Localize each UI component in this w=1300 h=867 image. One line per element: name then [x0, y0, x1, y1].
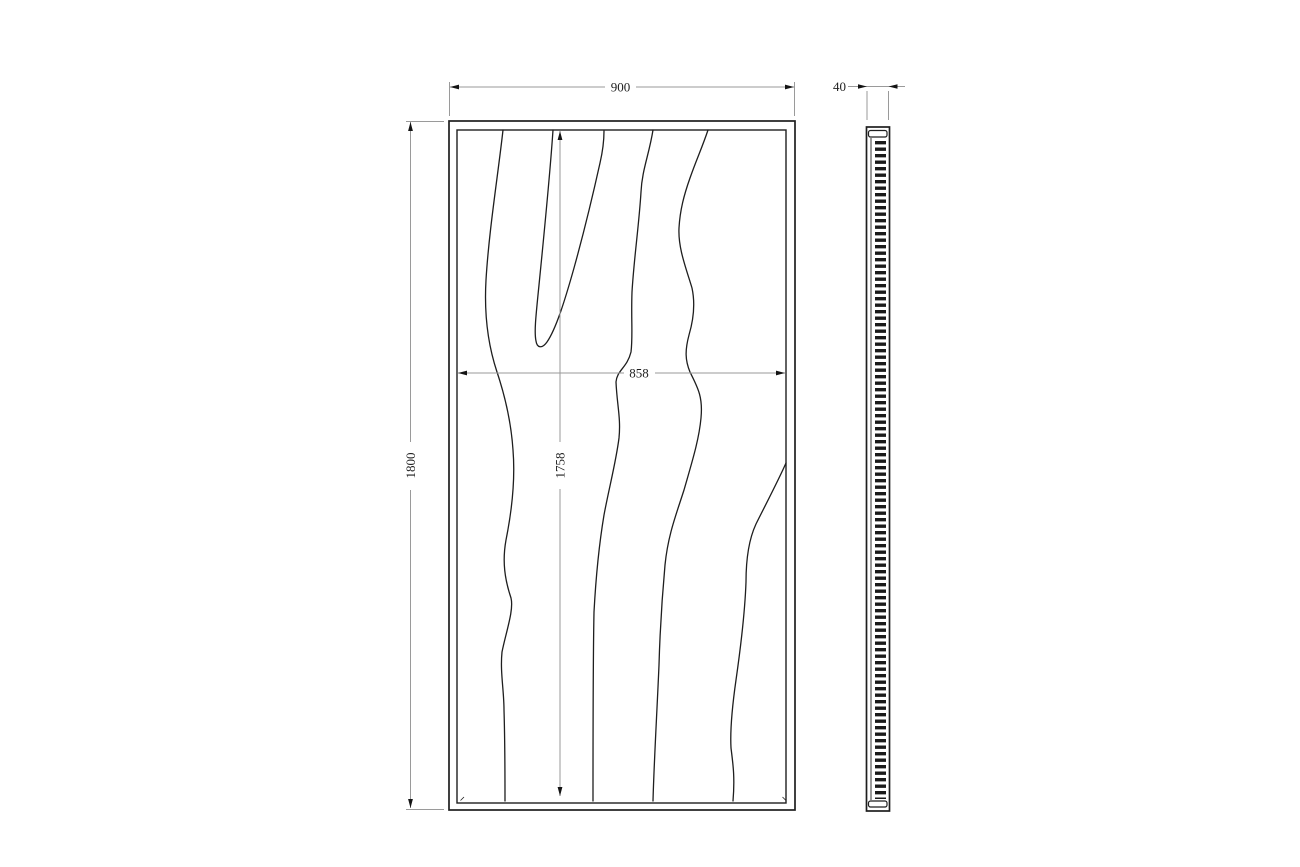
grain-line-4 [653, 130, 708, 801]
arrowhead [889, 84, 898, 89]
front-view: 900 1800 858 1758 [403, 80, 795, 811]
arrowhead [785, 85, 794, 90]
arrowhead [558, 787, 563, 796]
panel-inner-frame [457, 130, 786, 803]
side-bottom-cap [869, 801, 888, 807]
dimension-label-inner-height: 1758 [553, 453, 568, 479]
grain-line-2 [535, 130, 604, 347]
grain-line-3 [593, 130, 653, 801]
dimension-inner-height: 1758 [553, 131, 568, 796]
side-top-cap [869, 131, 888, 138]
dimension-label-overall-height: 1800 [403, 453, 418, 479]
dimension-inner-width: 858 [458, 366, 785, 381]
dimension-overall-height: 1800 [403, 122, 444, 810]
panel-outer-frame [449, 121, 795, 810]
corner-tick-bottom-left [461, 797, 465, 801]
dimension-label-thickness: 40 [833, 79, 846, 94]
dimension-label-inner-width: 858 [629, 366, 649, 381]
drawing-sheet: 900 1800 858 1758 [0, 0, 1300, 867]
side-view: 40 [833, 79, 905, 811]
arrowhead [858, 84, 867, 89]
dimension-thickness: 40 [833, 79, 905, 120]
dimension-label-overall-width: 900 [611, 80, 631, 95]
grain-line-5 [731, 463, 786, 801]
grain-line-1 [485, 130, 513, 801]
arrowhead [458, 371, 467, 376]
arrowhead [558, 131, 563, 140]
arrowhead [450, 85, 459, 90]
dimension-overall-width: 900 [450, 80, 795, 117]
grain-lines [485, 130, 786, 801]
arrowhead [776, 371, 785, 376]
arrowhead [408, 122, 413, 131]
arrowhead [408, 799, 413, 808]
drawing-canvas: 900 1800 858 1758 [0, 0, 1300, 867]
